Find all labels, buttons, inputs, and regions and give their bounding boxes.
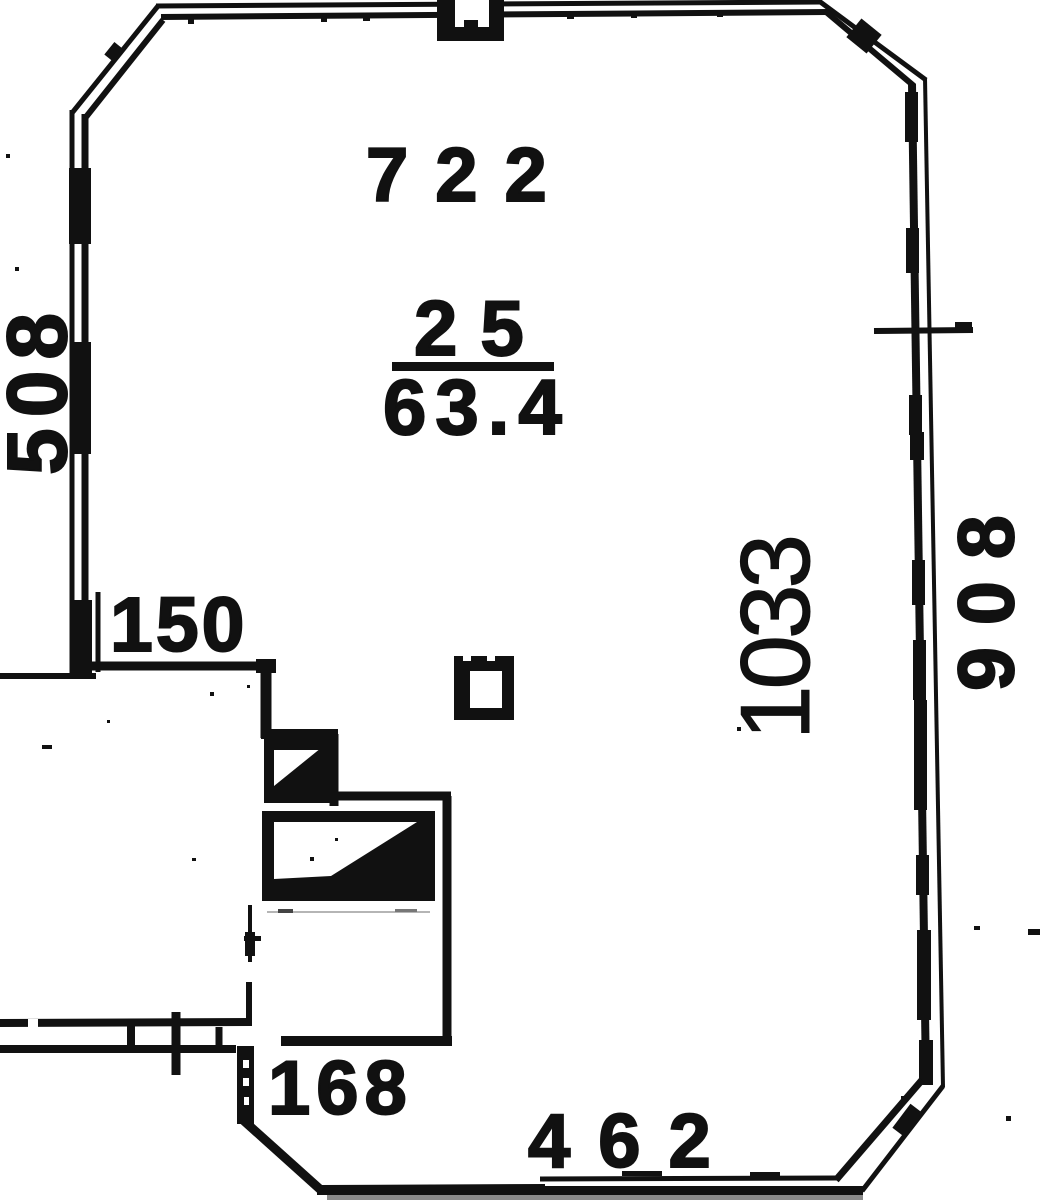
svg-text:63.4: 63.4: [383, 363, 571, 451]
svg-text:722: 722: [366, 133, 574, 218]
svg-text:462: 462: [528, 1099, 739, 1184]
svg-text:1033: 1033: [720, 537, 830, 740]
svg-text:168: 168: [268, 1046, 413, 1131]
svg-text:908: 908: [941, 493, 1030, 691]
svg-text:25: 25: [414, 284, 547, 372]
svg-text:150: 150: [110, 582, 247, 668]
svg-text:508: 508: [0, 302, 84, 475]
